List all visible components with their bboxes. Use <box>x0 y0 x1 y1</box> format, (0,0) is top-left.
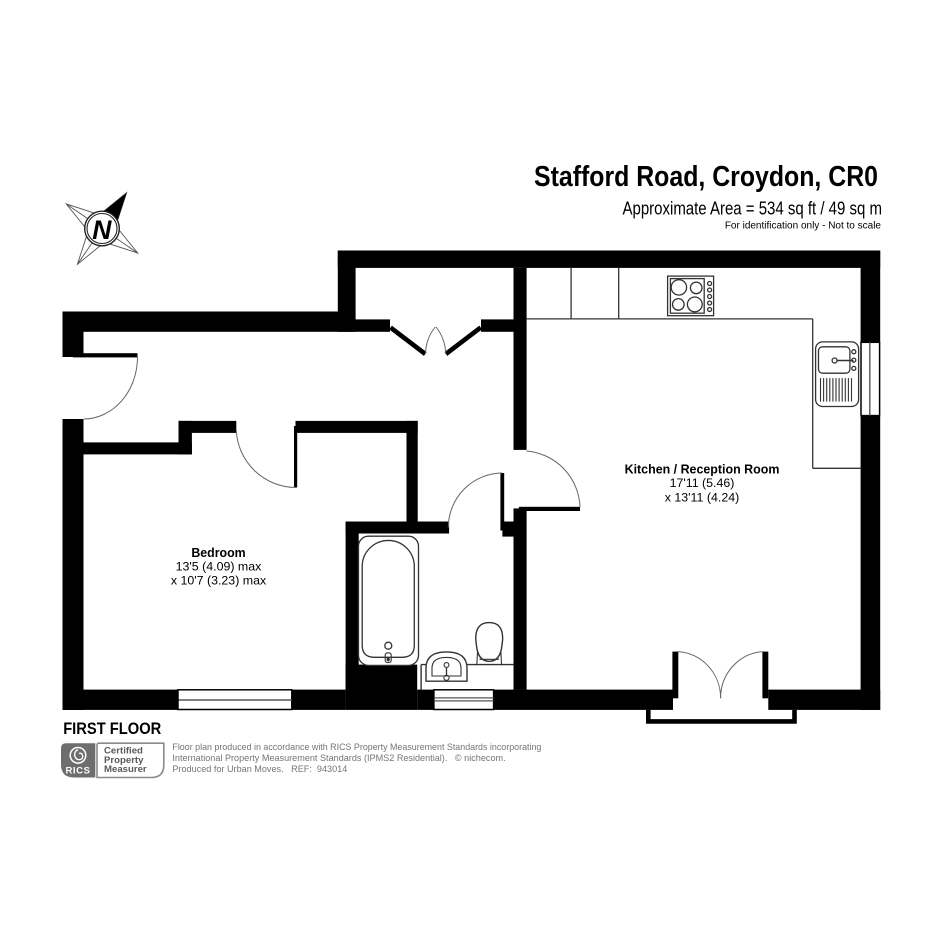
svg-text:Bedroom: Bedroom <box>191 545 245 560</box>
svg-text:Measurer: Measurer <box>104 764 147 775</box>
svg-text:RICS: RICS <box>65 766 90 777</box>
svg-text:International Property Measure: International Property Measurement Stand… <box>172 753 505 763</box>
svg-text:Produced for Urban Moves. RE: Produced for Urban Moves. REF: 943014 <box>172 764 347 774</box>
svg-text:Floor plan produced in accorda: Floor plan produced in accordance with R… <box>172 742 541 752</box>
svg-text:Kitchen / Reception Room: Kitchen / Reception Room <box>625 462 780 477</box>
svg-text:For identification only - Not: For identification only - Not to scale <box>725 220 882 231</box>
svg-text:13'5 (4.09) max: 13'5 (4.09) max <box>176 560 263 574</box>
svg-text:x 13'11 (4.24): x 13'11 (4.24) <box>665 491 739 505</box>
svg-text:Stafford Road, Croydon, CR0: Stafford Road, Croydon, CR0 <box>534 161 878 193</box>
svg-text:N: N <box>92 215 112 245</box>
svg-text:FIRST FLOOR: FIRST FLOOR <box>63 720 161 738</box>
svg-text:17'11 (5.46): 17'11 (5.46) <box>670 476 735 490</box>
svg-text:x 10'7 (3.23) max: x 10'7 (3.23) max <box>171 573 267 587</box>
svg-text:Approximate Area = 534 sq ft /: Approximate Area = 534 sq ft / 49 sq m <box>623 198 883 218</box>
